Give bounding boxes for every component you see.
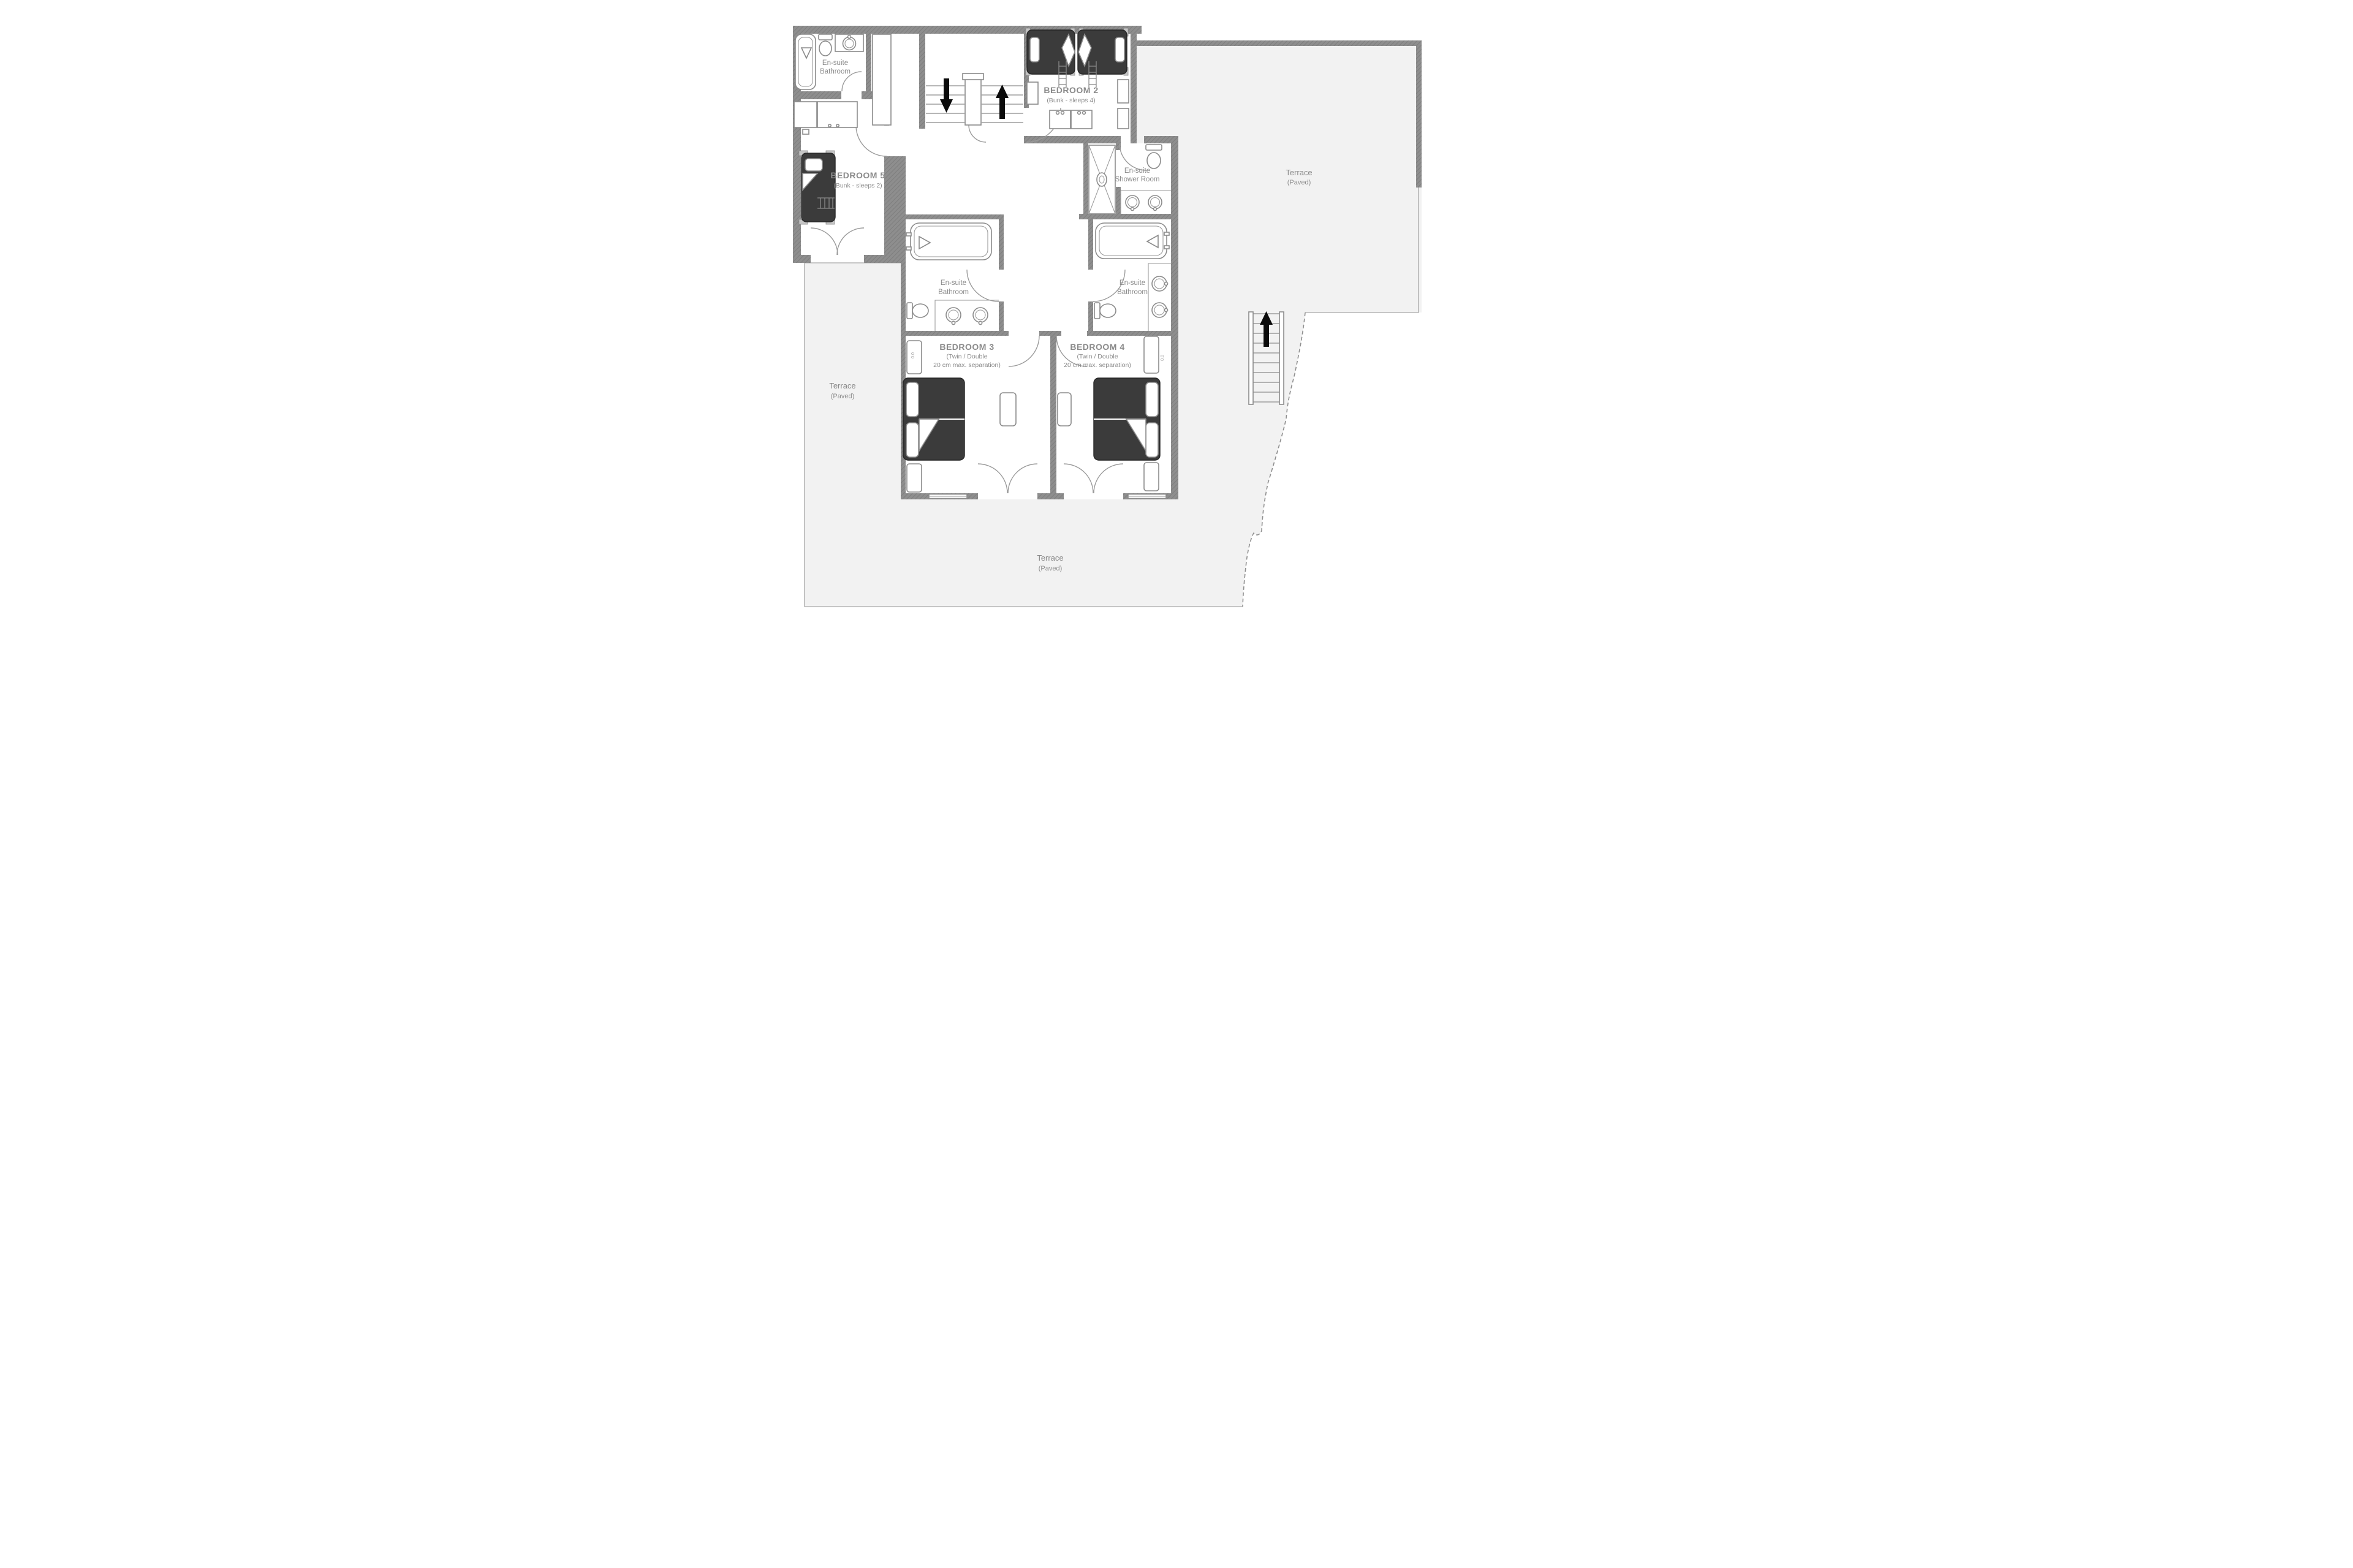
ensuite5-label-line1: En-suite <box>822 59 847 67</box>
terrace-top-wall <box>1134 40 1422 46</box>
desk <box>794 102 817 127</box>
ensuite3-label-line2: Bathroom <box>938 289 969 296</box>
bedroom5-french-doors <box>811 228 864 255</box>
twin-sinks <box>935 300 999 331</box>
bedroom3-subtitle-1: (Twin / Double <box>946 353 987 360</box>
double-bed <box>1094 378 1160 460</box>
nightstand <box>1144 336 1159 373</box>
ensuite5-label-line2: Bathroom <box>820 68 851 75</box>
bedroom4-name: BEDROOM 4 <box>1070 342 1124 352</box>
dresser <box>1118 108 1129 129</box>
dresser <box>1118 80 1129 103</box>
floorplan-canvas: 0.0 0.0 En-suite Bathroom BEDROOM 5 (Bun… <box>703 0 1650 631</box>
stairwell-door <box>969 125 986 142</box>
terrace-bottom-subtitle: (Paved) <box>1038 565 1062 572</box>
pillow <box>906 382 919 417</box>
twin-sinks <box>1121 191 1171 214</box>
toilet <box>1094 303 1116 319</box>
bedroom2-subtitle: (Bunk - sleeps 4) <box>1047 97 1095 104</box>
terrace-right-name: Terrace <box>1286 168 1312 177</box>
bedroom4-subtitle-2: 20 cm max. separation) <box>1064 362 1131 369</box>
bunk-bed <box>799 151 835 224</box>
pillow <box>1030 37 1039 62</box>
bedroom5-subtitle: (Bunk - sleeps 2) <box>833 182 882 189</box>
stair-divider-cap <box>963 74 983 80</box>
shower-tray <box>1089 145 1115 214</box>
stair-rail-right <box>1279 312 1284 404</box>
bench <box>1058 393 1071 426</box>
twin-sinks <box>1148 263 1171 331</box>
ensuite3-fixtures <box>906 223 999 331</box>
bunk-bed-left <box>1026 28 1075 87</box>
bedroom5-door <box>856 126 887 156</box>
pillow <box>906 423 919 457</box>
pillow <box>1115 37 1124 62</box>
interior-stairwell <box>926 74 1023 125</box>
bench <box>1000 393 1016 426</box>
nightstand <box>1144 463 1159 491</box>
pillow <box>1146 382 1158 417</box>
ensuite3-door <box>967 270 999 301</box>
wardrobe <box>1027 82 1038 104</box>
toilet <box>907 303 928 319</box>
stair-rail-left <box>1249 312 1253 404</box>
toilet <box>819 34 832 56</box>
shower-room-door <box>1120 143 1146 170</box>
bedroom4-subtitle-1: (Twin / Double <box>1077 353 1118 360</box>
bedroom5-furniture <box>794 102 857 224</box>
pillow <box>1146 423 1158 457</box>
dresser <box>817 102 857 127</box>
bunk-bed-right <box>1078 28 1128 87</box>
dimension-mark: 0.0 <box>1161 355 1165 361</box>
shower-room-label-line1: En-suite <box>1124 167 1150 175</box>
stool <box>803 129 809 134</box>
ensuite4-label-line2: Bathroom <box>1117 289 1148 296</box>
ensuite3-label-line1: En-suite <box>940 279 966 287</box>
arrow-down-icon <box>940 78 953 113</box>
terrace-right-wall <box>1416 40 1422 187</box>
bedroom3-french-doors <box>978 464 1037 493</box>
toilet <box>1146 145 1162 169</box>
bedroom5-name: BEDROOM 5 <box>830 170 885 180</box>
terrace-bottom-name: Terrace <box>1037 553 1063 562</box>
bedroom3-door <box>1009 336 1039 366</box>
bathtub <box>1096 223 1169 259</box>
nightstand <box>907 464 922 492</box>
bathtub <box>906 223 991 260</box>
bedroom2-name: BEDROOM 2 <box>1044 85 1098 95</box>
double-bed <box>903 378 964 460</box>
terrace-area <box>805 40 1422 607</box>
terrace-paved-surface <box>805 40 1422 607</box>
sink <box>835 34 863 51</box>
closet <box>873 34 891 125</box>
terrace-left-subtitle: (Paved) <box>830 393 854 400</box>
terrace-right-subtitle: (Paved) <box>1287 179 1311 186</box>
bedroom3-name: BEDROOM 3 <box>939 342 994 352</box>
ensuite4-label-line1: En-suite <box>1119 279 1145 287</box>
ensuite4-fixtures <box>1094 223 1171 331</box>
stair-divider <box>965 78 981 125</box>
bedroom2-furniture <box>1026 28 1129 129</box>
chest-of-drawers <box>1050 110 1092 129</box>
floorplan-page: 0.0 0.0 En-suite Bathroom BEDROOM 5 (Bun… <box>703 0 1650 631</box>
shower-room-label-line2: Shower Room <box>1115 176 1159 183</box>
bedroom3-subtitle-2: 20 cm max. separation) <box>933 362 1001 369</box>
terrace-left-name: Terrace <box>829 381 855 390</box>
pillow <box>805 159 822 171</box>
dimension-mark: 0.0 <box>911 352 915 358</box>
bedroom4-french-doors <box>1064 464 1123 493</box>
